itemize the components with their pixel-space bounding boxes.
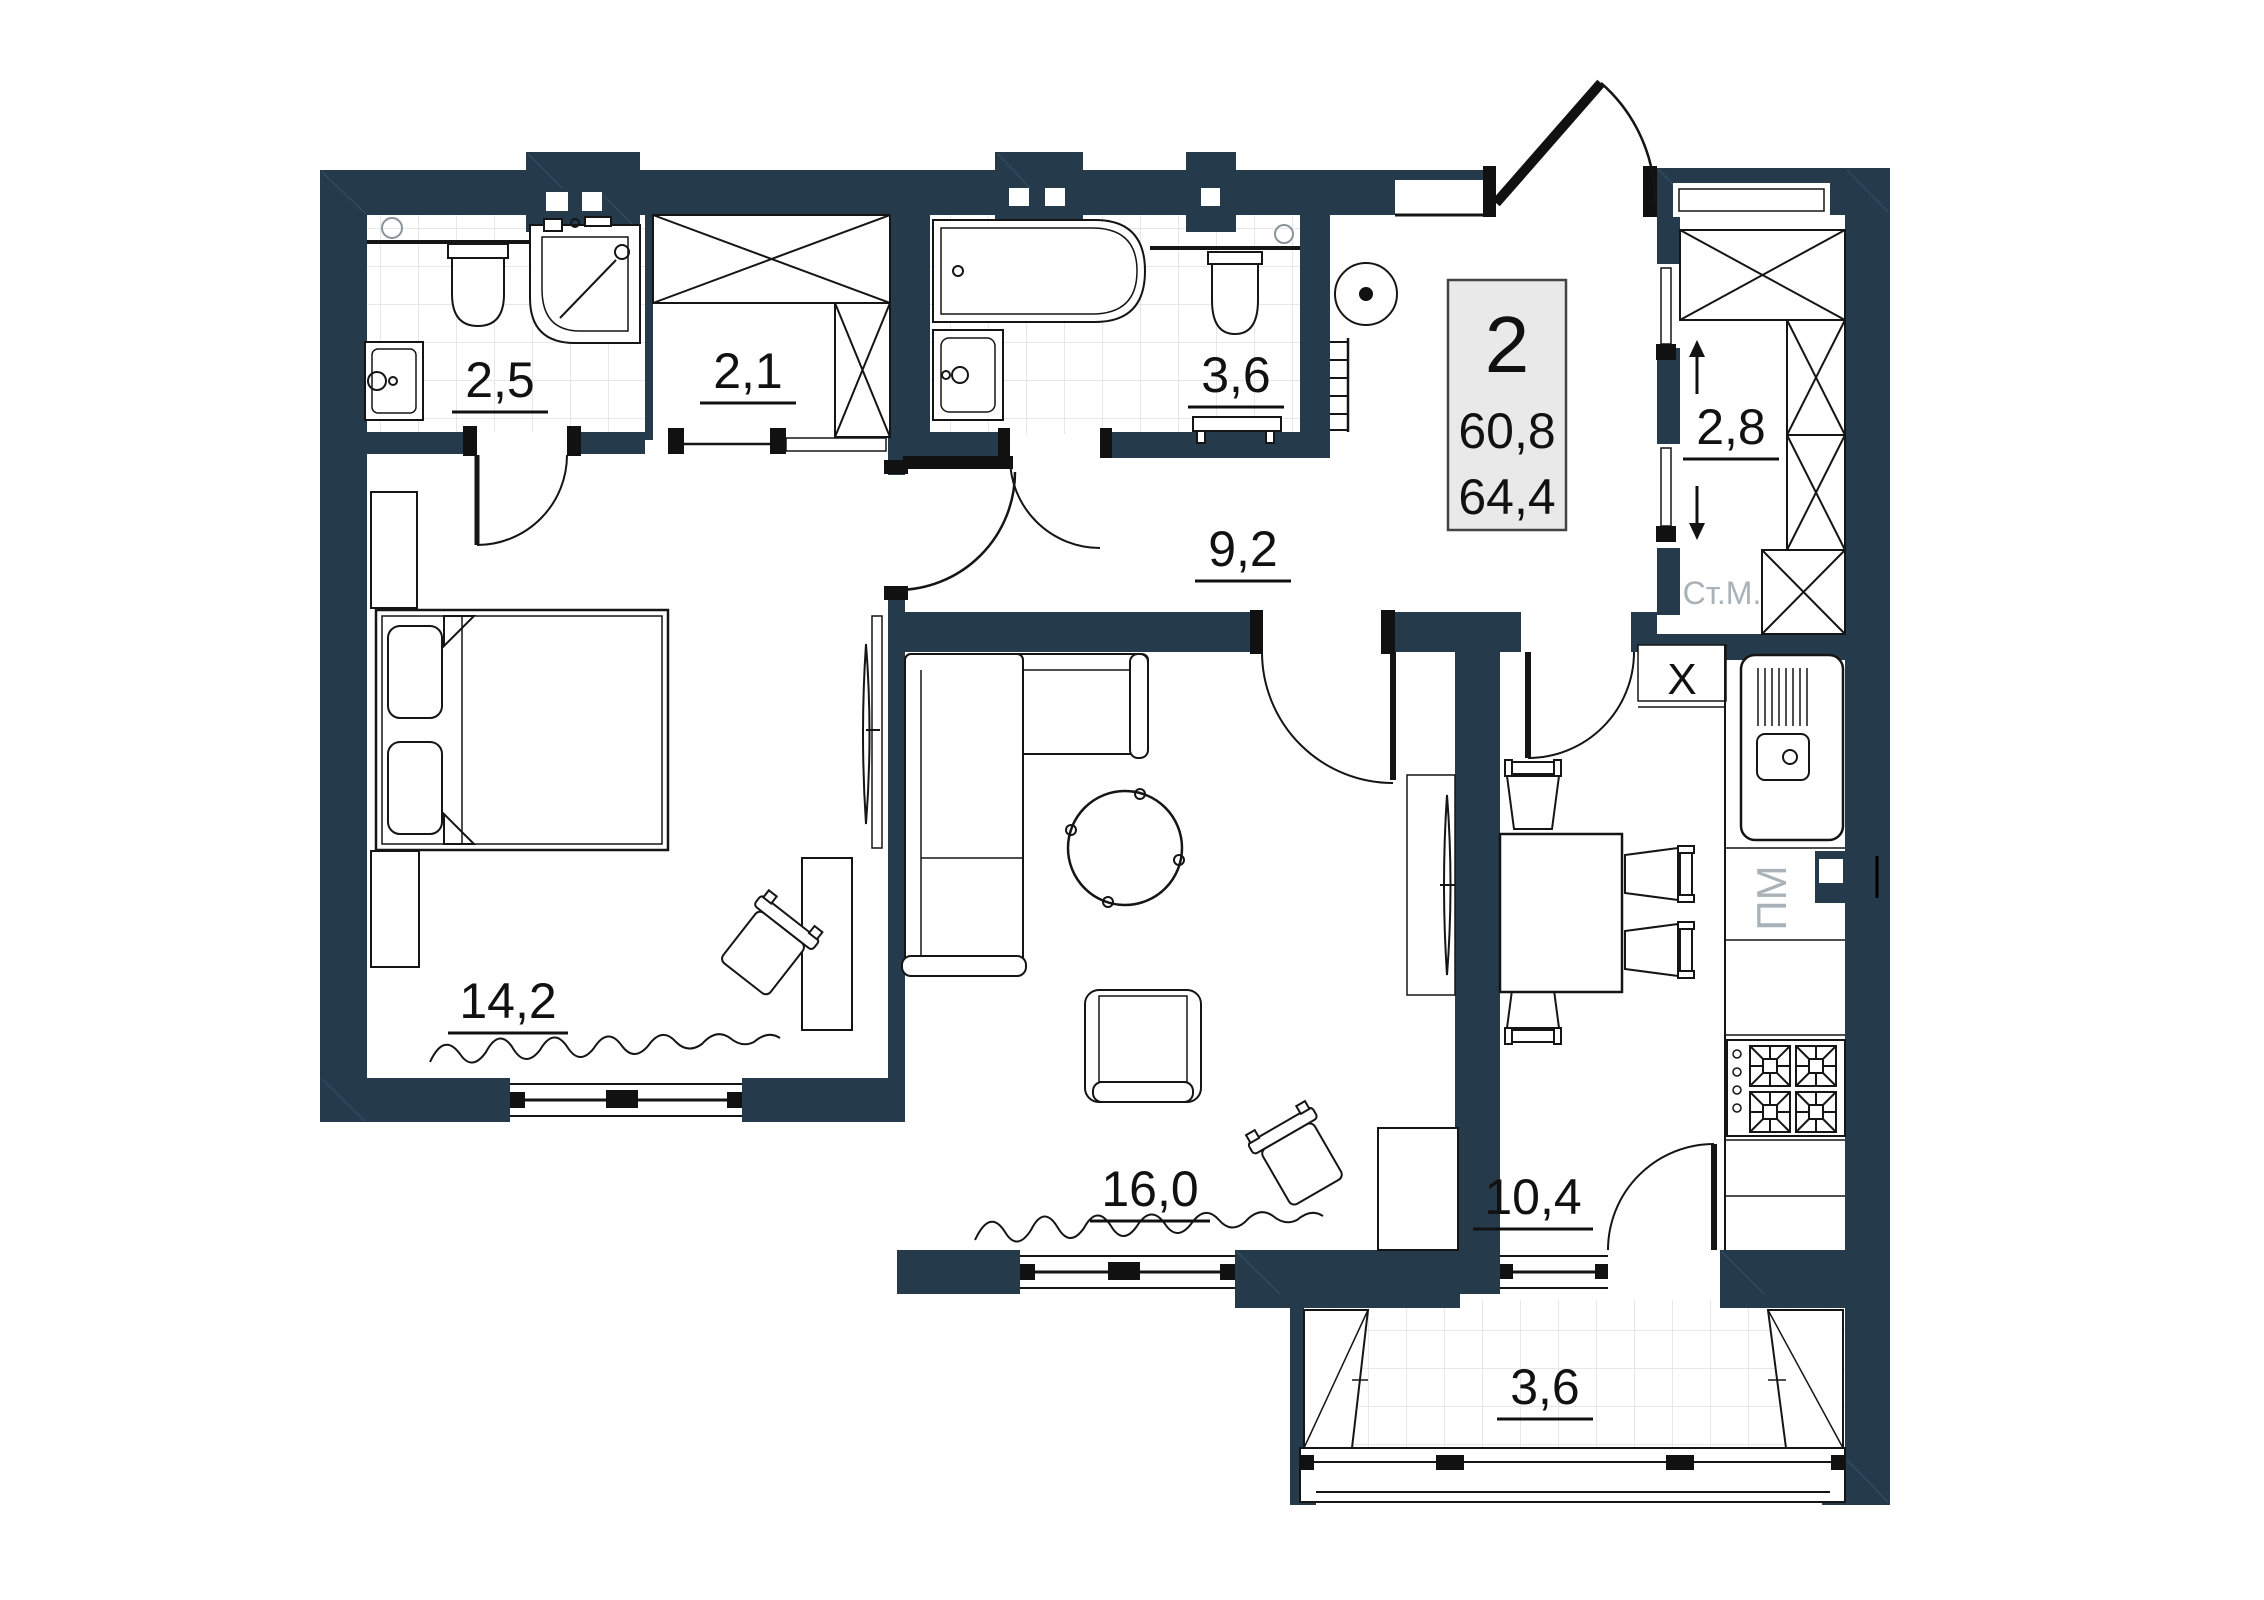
living-window — [1020, 1250, 1235, 1294]
wall-living-kitchen — [1455, 652, 1500, 1250]
tv-icon — [863, 616, 882, 848]
wall-living-top — [897, 612, 1262, 652]
hallway-items — [1335, 263, 1397, 325]
wall-balcony-right — [1845, 1300, 1890, 1505]
door-track-block — [1656, 526, 1676, 542]
wall-bedroom-bottom-right — [742, 1078, 905, 1122]
bathtub-icon — [933, 220, 1145, 322]
dining-chair-icon — [1505, 760, 1561, 829]
closet-icon — [1762, 550, 1845, 634]
vent-square — [546, 192, 568, 211]
floor-plan-page: 2 60,8 64,4 Ст.М. — [0, 0, 2264, 1600]
wall-kitchen-bottom-pier — [1720, 1250, 1845, 1308]
stove-icon — [1727, 1040, 1845, 1136]
storage-door-panel-2 — [1661, 448, 1671, 526]
vent-square — [1009, 188, 1029, 206]
coffee-table-icon — [1066, 789, 1184, 907]
tv-unit-icon — [1407, 775, 1455, 995]
dining-chair-icon — [1625, 922, 1694, 978]
room-label-wardrobe: 2,1 — [713, 343, 783, 399]
armchair-icon — [1085, 990, 1201, 1102]
desk-icon — [1378, 1128, 1458, 1250]
wall-bath-small-bottom-a — [365, 432, 463, 454]
dining-chair-icon — [1625, 846, 1694, 902]
bedroom-door — [884, 460, 1015, 600]
vent-square — [1045, 188, 1065, 206]
info-rooms-count: 2 — [1485, 300, 1530, 389]
closet-icon — [653, 215, 890, 303]
info-area-total: 64,4 — [1458, 469, 1555, 525]
wall-living-bottom-pier — [1235, 1250, 1460, 1308]
dishwasher-label: ПМ — [1748, 865, 1795, 930]
room-label-kitchen: 10,4 — [1484, 1169, 1581, 1225]
room-label-bath-small: 2,5 — [465, 352, 535, 408]
wall-bedroom-bottom-left — [320, 1078, 510, 1122]
door-track-block — [1656, 344, 1676, 360]
wall-bath-large-bottom-a — [905, 432, 1010, 458]
wall-bath-small-bottom-b — [581, 432, 645, 454]
room-label-balcony: 3,6 — [1510, 1359, 1580, 1415]
wall-bedroom-living — [888, 590, 905, 1078]
balcony-door — [1608, 1144, 1714, 1250]
room-label-hallway: 9,2 — [1208, 521, 1278, 577]
storage-window-slot — [1673, 183, 1830, 217]
arrow-up-icon — [1689, 340, 1705, 394]
vent-square — [582, 192, 602, 211]
room-label-storage: 2,8 — [1696, 399, 1766, 455]
wall-right — [1845, 168, 1890, 1300]
ceiling-lamp-dot — [1359, 287, 1373, 301]
floor-plan-drawing: 2 60,8 64,4 Ст.М. — [0, 0, 2264, 1600]
vent-shaft-label: X — [1667, 655, 1696, 704]
room-label-bath-large: 3,6 — [1201, 347, 1271, 403]
vent-box: X — [1638, 645, 1726, 707]
wall-wardrobe-bath — [890, 215, 930, 432]
shower-icon — [530, 217, 640, 343]
sink-icon — [365, 342, 423, 420]
kitchen-window — [1500, 1250, 1608, 1294]
wall-living-bottom-a — [897, 1250, 1020, 1294]
kitchen-fixtures: X ПМ — [1500, 645, 1845, 1250]
desk-chair-icon — [1243, 1100, 1350, 1211]
toilet-icon — [448, 244, 508, 326]
entrance-door — [1483, 83, 1657, 217]
arrow-down-icon — [1689, 486, 1705, 540]
bath-small-door — [463, 426, 581, 545]
kitchen-door — [1528, 652, 1634, 758]
entry-niche — [1395, 180, 1483, 215]
curtain-wave — [430, 1034, 780, 1062]
closet-icon — [1680, 230, 1845, 320]
room-label-living: 16,0 — [1101, 1161, 1198, 1217]
wall-hall-block — [1394, 612, 1521, 652]
washing-machine-label: Ст.М. — [1683, 575, 1762, 611]
bed-icon — [376, 610, 668, 850]
bedroom-furniture — [371, 492, 882, 1063]
balcony-window-band — [1300, 1448, 1845, 1502]
nightstand-icon — [371, 492, 417, 608]
towel-rail-icon — [1330, 338, 1348, 432]
wall-left — [320, 170, 367, 1120]
closet-icon — [835, 303, 890, 437]
info-area-living: 60,8 — [1458, 403, 1555, 459]
wall-bath-large-right — [1300, 170, 1330, 458]
kitchen-sink-icon — [1741, 655, 1843, 840]
storage-door-panel-1 — [1661, 268, 1671, 344]
sink-icon — [933, 330, 1003, 420]
living-door — [1250, 610, 1395, 783]
dining-table-icon — [1500, 834, 1622, 992]
wall-wardrobe-left — [645, 215, 653, 440]
dining-set — [1500, 760, 1694, 1044]
toilet-icon — [1208, 252, 1262, 334]
wall-kitchen-bottom-stub — [1455, 1250, 1500, 1294]
closet-icon — [1787, 320, 1845, 550]
shaft-square — [1819, 859, 1843, 883]
nightstand-icon — [371, 851, 419, 967]
vent-square — [1201, 188, 1220, 206]
bedroom-window — [510, 1078, 742, 1122]
room-label-bedroom: 14,2 — [459, 973, 556, 1029]
info-box: 2 60,8 64,4 — [1448, 280, 1566, 530]
